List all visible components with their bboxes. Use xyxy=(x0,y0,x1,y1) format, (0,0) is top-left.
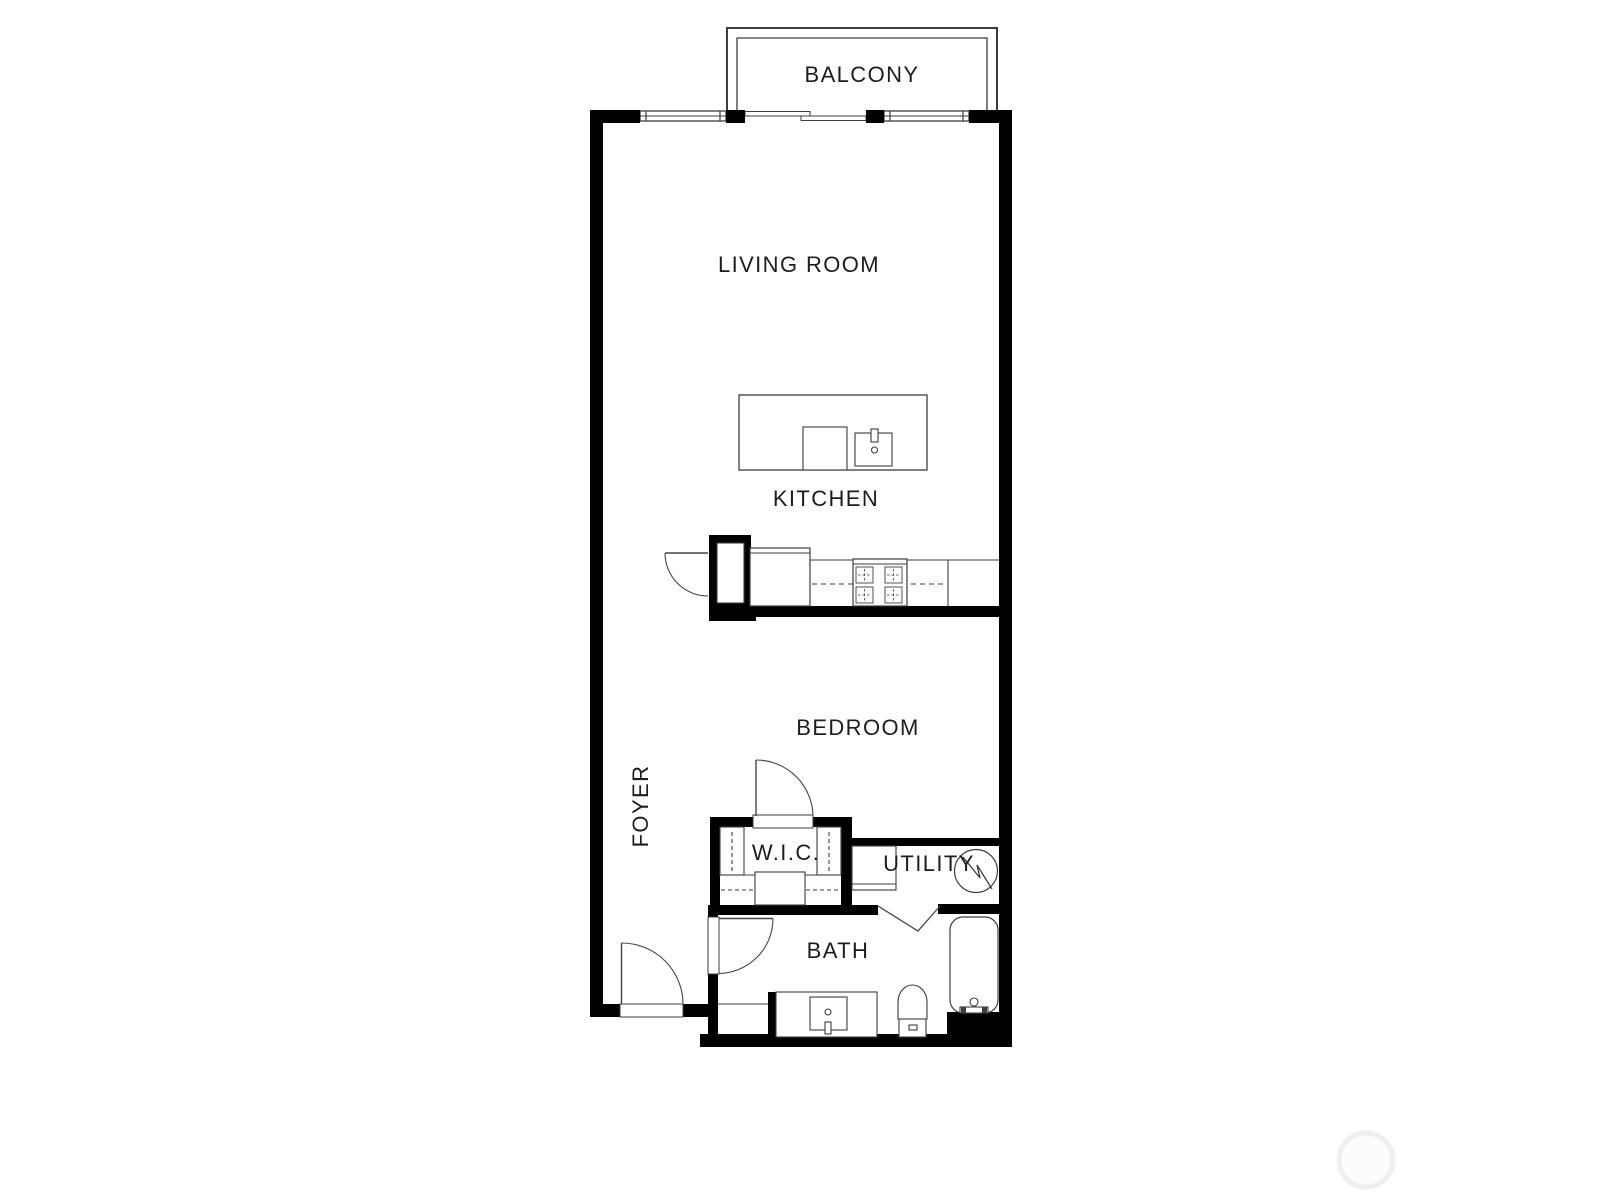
bedroom-door-threshold xyxy=(753,815,813,828)
wall-wic-right xyxy=(841,817,852,915)
watermark-circle xyxy=(1339,1133,1393,1187)
kitchen-pillar-foot xyxy=(709,606,756,621)
wall-under-tub xyxy=(947,1012,1012,1037)
bath-door-jamb xyxy=(708,917,719,974)
wic-interior xyxy=(720,827,841,905)
room-label-kitchen: KITCHEN xyxy=(773,486,879,511)
room-label-bedroom: BEDROOM xyxy=(796,715,919,740)
vanity-faucet xyxy=(825,1022,831,1034)
wall-top-seg xyxy=(590,110,640,123)
window-left xyxy=(640,111,726,121)
vanity xyxy=(718,992,877,1037)
wall-foyer-bottom-seg xyxy=(590,1004,620,1017)
pantry-closet xyxy=(717,543,744,603)
wall-utility-bottom-seg xyxy=(938,904,999,914)
wall-utility-bottom-seg xyxy=(847,905,878,915)
entry-threshold xyxy=(620,1004,683,1017)
toilet-bowl xyxy=(898,985,927,1019)
entry-door xyxy=(622,943,684,1004)
wall-right xyxy=(999,110,1012,1047)
bath-door xyxy=(719,919,773,974)
sliding-glass-door xyxy=(745,112,866,121)
entry-door-arc xyxy=(622,943,684,1004)
wall-vanity-stub xyxy=(768,992,776,1037)
toilet xyxy=(898,985,927,1037)
window-right xyxy=(884,111,969,121)
floorplan-canvas: BALCONY LIVING ROOM KITCHEN BEDROOM FOYE… xyxy=(0,0,1600,1200)
room-label-foyer: FOYER xyxy=(628,765,653,848)
island-faucet xyxy=(871,429,878,442)
wall-top-seg xyxy=(866,110,884,123)
utility-door xyxy=(878,906,940,931)
wall-top-seg xyxy=(726,110,745,123)
wall-foyer-bottom-seg xyxy=(683,1004,709,1017)
room-label-living-room: LIVING ROOM xyxy=(718,252,880,277)
bedroom-door xyxy=(756,760,813,817)
windows-and-slider xyxy=(640,111,969,121)
wall-wic-left xyxy=(710,817,720,915)
wall-utility-top xyxy=(847,838,999,846)
room-label-utility: UTILITY xyxy=(883,851,975,876)
wall-kitchen-south xyxy=(751,606,1012,617)
bath-door-arc xyxy=(719,919,773,974)
closet-shelf xyxy=(755,872,805,905)
cooktop xyxy=(853,559,907,606)
dishwasher xyxy=(803,427,847,470)
kitchen-counter xyxy=(750,548,999,606)
toilet-handle xyxy=(909,1025,917,1030)
wall-wic-bottom xyxy=(710,905,852,915)
kitchen-island xyxy=(739,395,927,470)
wall-left xyxy=(590,110,603,1017)
wall-bath-left-seg xyxy=(708,905,718,917)
room-label-bath: BATH xyxy=(807,938,870,963)
refrigerator xyxy=(750,548,810,606)
wall-bath-left-seg xyxy=(708,973,718,1034)
room-label-balcony: BALCONY xyxy=(805,62,920,87)
doors xyxy=(622,553,941,1004)
kitchen-door xyxy=(665,553,708,596)
kitchen-door-arc xyxy=(665,553,708,596)
bedroom-door-arc xyxy=(756,760,813,817)
room-label-wic: W.I.C. xyxy=(752,840,820,865)
